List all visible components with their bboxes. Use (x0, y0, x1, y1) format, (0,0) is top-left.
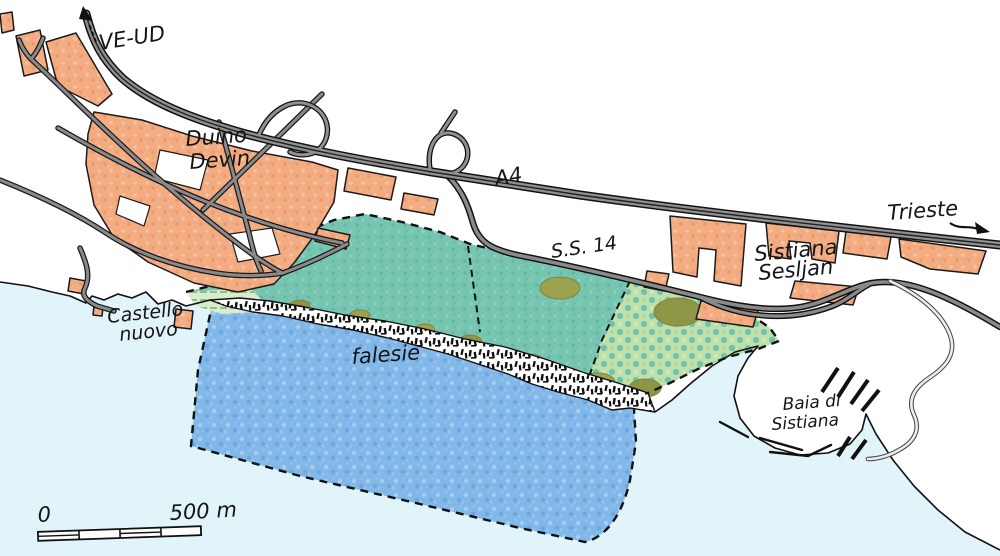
urban-block (401, 193, 438, 215)
scale-end-label: 500 m (169, 498, 237, 525)
hand-drawn-map-duino-sistiana: 0 500 m VE-UD Duino Devin A4 Trieste S.S… (0, 0, 1000, 556)
label-falesie: falesie (351, 340, 421, 369)
scale-start-label: 0 (37, 502, 52, 527)
label-sesljan: Sesljan (757, 255, 834, 285)
urban-block (344, 168, 396, 200)
label-devin: Devin (189, 146, 251, 174)
label-trieste: Trieste (887, 196, 959, 225)
label-baia-sistiana: Sistiana (771, 410, 840, 435)
road-light-gray (868, 281, 952, 459)
label-ss14: S.S. 14 (550, 232, 619, 263)
urban-block (0, 12, 14, 33)
trieste-arrow-icon (950, 222, 990, 234)
urban-area-sistiana (670, 216, 746, 286)
map-canvas: 0 500 m VE-UD Duino Devin A4 Trieste S.S… (0, 0, 1000, 556)
label-a4: A4 (491, 162, 524, 191)
label-ve-ud: VE-UD (97, 21, 167, 55)
